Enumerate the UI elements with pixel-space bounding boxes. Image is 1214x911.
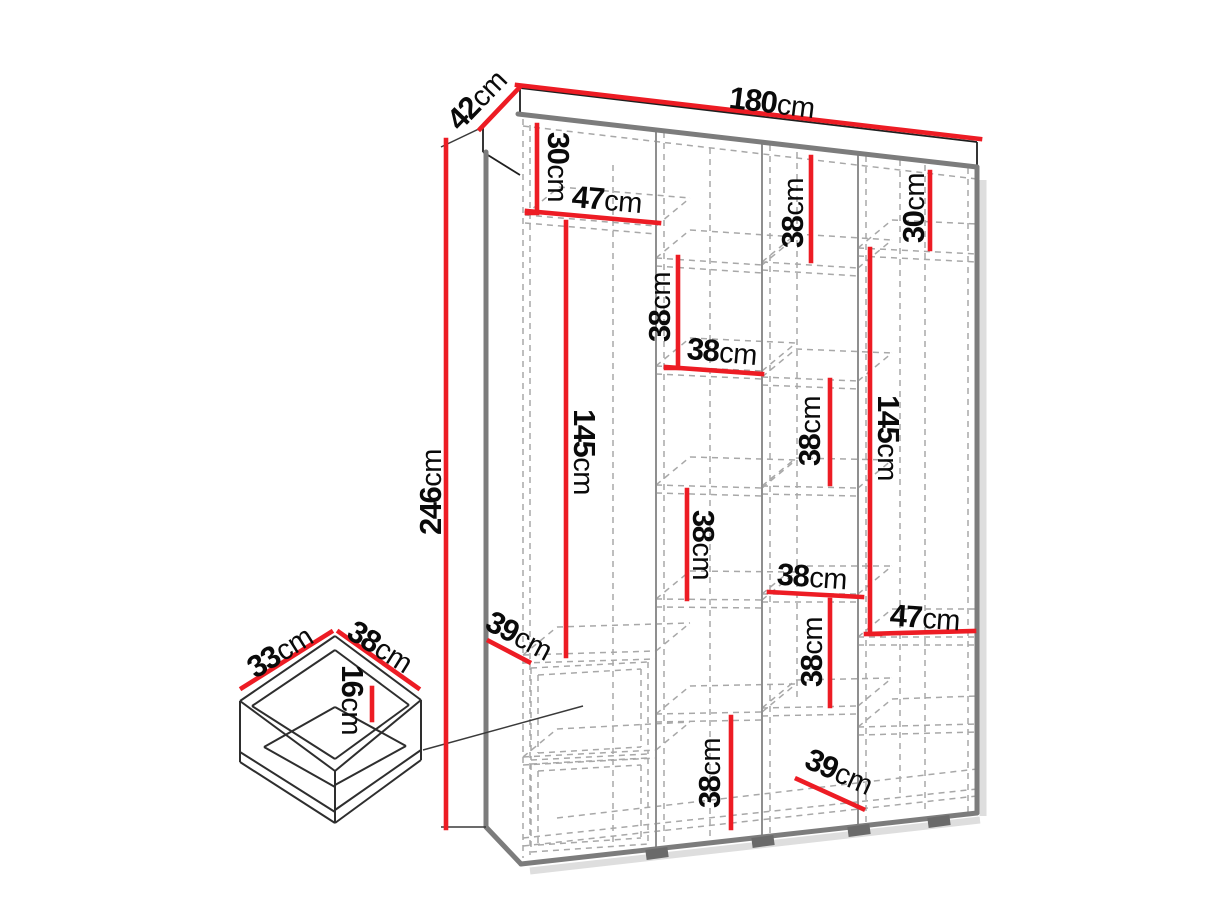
interior-dashed-lines xyxy=(523,119,977,858)
wardrobe-linework xyxy=(0,0,1214,911)
diagram-stage: 42cm180cm30cm47cm38cm30cm38cm38cm145cm14… xyxy=(0,0,1214,911)
drawer-detail xyxy=(240,636,421,823)
